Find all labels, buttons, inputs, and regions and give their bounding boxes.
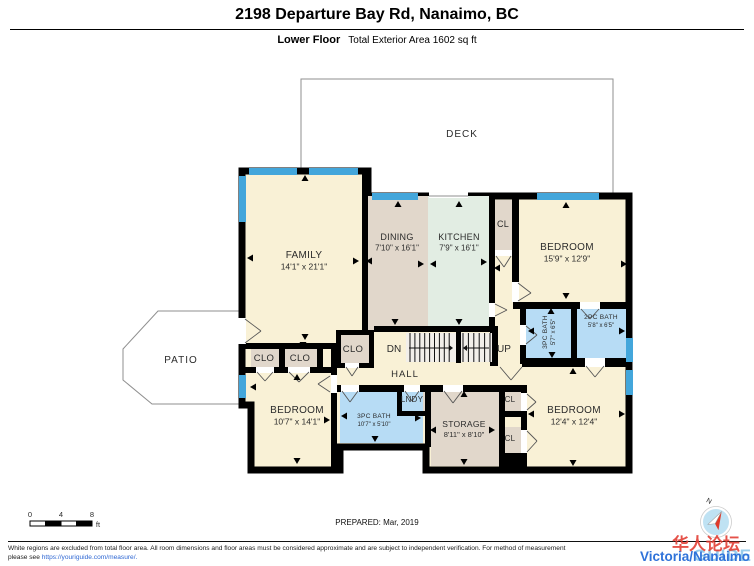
door-opening xyxy=(520,325,526,345)
wall xyxy=(571,302,577,364)
room-label-cl-top-group: CL xyxy=(497,219,509,229)
measure-link[interactable]: https://youriguide.com/measure/. xyxy=(42,554,138,561)
victoria-nanaimo-watermark: Victoria/Nanaimo xyxy=(640,549,750,564)
window xyxy=(239,375,246,398)
room-label-kitchen: KITCHEN xyxy=(438,232,480,242)
stair-divider xyxy=(456,331,461,363)
wall xyxy=(420,385,443,392)
wall xyxy=(362,171,368,330)
wall xyxy=(336,363,345,368)
room-label-storage-dims: 8'11" x 8'10" xyxy=(444,430,485,439)
room-label-bedroom-bl-group: BEDROOM10'7" x 14'1" xyxy=(270,405,324,427)
room-label-clo-mid-group: CLO xyxy=(343,344,363,355)
wall xyxy=(489,317,495,328)
room-label-bedroom-tr-group: BEDROOM15'9" x 12'9" xyxy=(540,242,594,264)
door-opening xyxy=(238,318,246,344)
wall xyxy=(331,393,337,473)
wall xyxy=(279,349,285,367)
disclaimer-text: White regions are excluded from total fl… xyxy=(8,545,648,563)
room-label-clo1-group: CLO xyxy=(254,353,274,364)
prepared-date: PREPARED: Mar, 2019 xyxy=(0,518,754,527)
room-label-family: FAMILY xyxy=(286,250,323,261)
door-opening xyxy=(443,385,463,392)
room-label-clo-mid: CLO xyxy=(343,344,363,355)
wall xyxy=(374,326,497,332)
door-opening xyxy=(256,367,274,373)
compass-north-label: N xyxy=(705,497,713,506)
page-title: 2198 Departure Bay Rd, Nanaimo, BC xyxy=(0,6,754,24)
disclaimer-line1: White regions are excluded from total fl… xyxy=(8,545,565,552)
room-label-bath3-bottom: 3PC BATH xyxy=(357,413,391,420)
room-label-laundry: LNDY xyxy=(401,395,424,404)
door-opening xyxy=(404,385,420,392)
wall xyxy=(337,385,341,392)
room-label-laundry-group: LNDY xyxy=(401,395,424,404)
room-label-cl-lower: CL xyxy=(505,434,516,443)
window xyxy=(309,168,358,175)
room-label-cl-upper-group: CL xyxy=(505,395,516,404)
door-opening xyxy=(580,302,600,309)
room-label-bedroom-br-group: BEDROOM12'4" x 12'4" xyxy=(547,405,601,427)
room-label-bedroom-br: BEDROOM xyxy=(547,405,601,416)
room-label-bedroom-br-dims: 12'4" x 12'4" xyxy=(551,417,598,427)
floor-plan-drawing: DECKPATIODNUPFAMILY14'1" x 21'1"DINING7'… xyxy=(0,0,754,566)
door-opening xyxy=(585,358,605,367)
room-label-clo1: CLO xyxy=(254,353,274,364)
room-label-cl-top: CL xyxy=(497,219,509,229)
stairs-up-label: UP xyxy=(497,344,511,355)
wall xyxy=(521,411,527,430)
floor-subtitle: Lower FloorTotal Exterior Area 1602 sq f… xyxy=(0,34,754,46)
door-opening xyxy=(489,303,495,317)
wall xyxy=(521,385,527,393)
window xyxy=(239,176,246,222)
room-label-bath2: 2PC BATH xyxy=(584,314,618,321)
wall xyxy=(489,196,495,303)
wall xyxy=(369,330,374,368)
room-label-dining: DINING xyxy=(380,232,413,242)
door-opening xyxy=(331,375,337,393)
wall xyxy=(600,302,629,309)
room-label-bedroom-tr-dims: 15'9" x 12'9" xyxy=(544,254,591,264)
door-opening xyxy=(495,250,512,256)
room-label-bedroom-tr: BEDROOM xyxy=(540,242,594,253)
hall-label-group: HALL xyxy=(391,369,419,380)
wall xyxy=(605,358,629,367)
disclaimer-line2-prefix: please see xyxy=(8,554,42,561)
window xyxy=(537,193,599,200)
footer-rule xyxy=(8,541,746,542)
door-opening xyxy=(341,385,359,392)
area-label: Total Exterior Area 1602 sq ft xyxy=(348,35,476,46)
room-label-bath3-right: 3PC BATH xyxy=(542,315,549,349)
wall xyxy=(512,196,519,282)
wall xyxy=(336,330,341,368)
door-opening xyxy=(429,190,468,198)
patio-label: PATIO xyxy=(164,355,198,366)
wall xyxy=(336,330,374,335)
door-opening xyxy=(345,363,359,368)
wall xyxy=(359,363,374,368)
room-label-cl-upper: CL xyxy=(505,395,516,404)
floor-label: Lower Floor xyxy=(277,34,340,46)
wall xyxy=(520,302,526,325)
room-label-clo2: CLO xyxy=(290,353,310,364)
wall xyxy=(274,367,290,373)
door-opening xyxy=(288,367,310,373)
room-label-cl-lower-group: CL xyxy=(505,434,516,443)
wall xyxy=(425,385,431,447)
room-label-bath2-dims: 5'8" x 6'5" xyxy=(588,323,614,329)
room-label-clo2-group: CLO xyxy=(290,353,310,364)
wall xyxy=(463,385,522,392)
room-label-bedroom-bl-dims: 10'7" x 14'1" xyxy=(274,417,321,427)
floor-plan-page: DECKPATIODNUPFAMILY14'1" x 21'1"DINING7'… xyxy=(0,0,754,566)
stairs-down-label: DN xyxy=(387,344,401,355)
header-rule xyxy=(10,29,744,30)
wall xyxy=(397,411,425,416)
room-label-bath3-right-dims: 5'7" x 6'5" xyxy=(551,319,557,345)
wall xyxy=(242,343,340,349)
kitchen-floor xyxy=(428,196,489,332)
wall xyxy=(521,453,527,470)
room-label-family-group: FAMILY14'1" x 21'1" xyxy=(281,250,328,272)
room-label-storage: STORAGE xyxy=(442,419,486,429)
window xyxy=(626,338,633,362)
door-opening xyxy=(521,393,527,411)
room-label-bath3-bottom-dims: 10'7" x 5'10" xyxy=(358,422,391,428)
deck-label: DECK xyxy=(446,129,478,140)
wall xyxy=(522,358,585,367)
window xyxy=(626,370,633,395)
storage-floor xyxy=(431,392,499,466)
door-opening xyxy=(512,282,519,302)
room-label-dining-dims: 7'10" x 16'1" xyxy=(375,244,419,253)
wall xyxy=(317,349,323,367)
room-label-kitchen-dims: 7'9" x 16'1" xyxy=(439,244,479,253)
window xyxy=(372,193,418,200)
door-opening xyxy=(521,430,527,453)
room-label-family-dims: 14'1" x 21'1" xyxy=(281,262,328,272)
room-label-bedroom-bl: BEDROOM xyxy=(270,405,324,416)
window xyxy=(249,168,297,175)
hall-label: HALL xyxy=(391,369,419,380)
